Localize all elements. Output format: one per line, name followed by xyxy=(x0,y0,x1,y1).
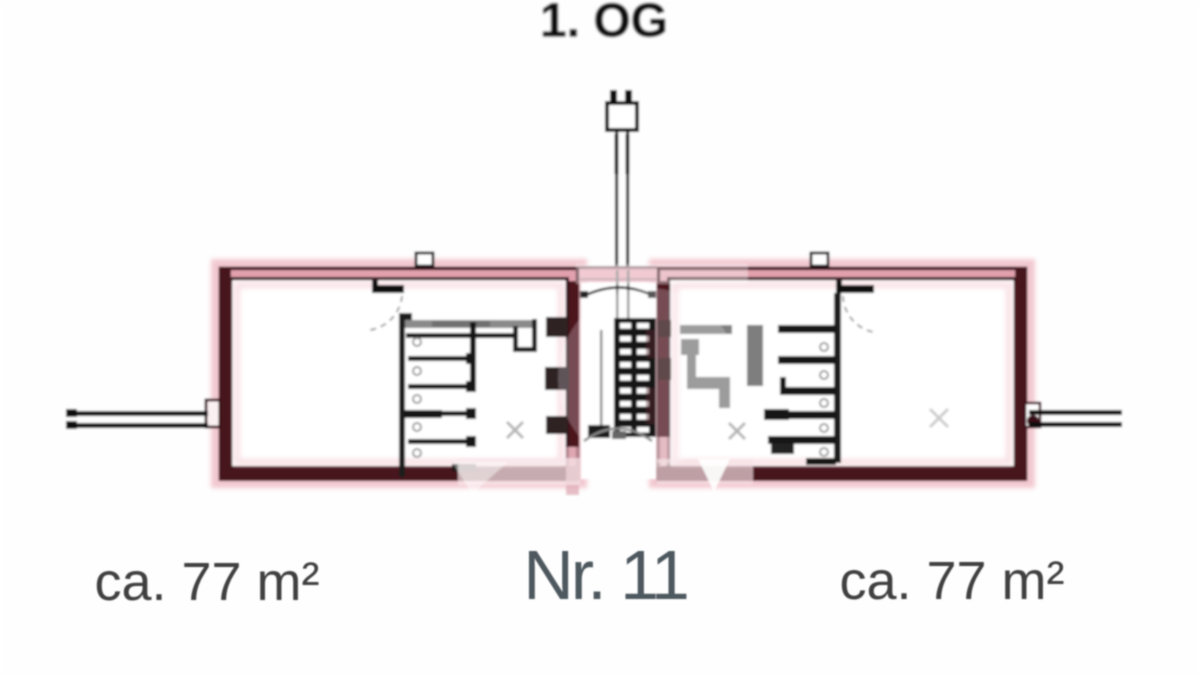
svg-text:1. OG: 1. OG xyxy=(540,0,668,48)
svg-text:ca. 77 m²: ca. 77 m² xyxy=(94,552,319,612)
svg-text:Nr. 11: Nr. 11 xyxy=(523,536,687,614)
svg-text:ca. 77 m²: ca. 77 m² xyxy=(839,551,1064,611)
